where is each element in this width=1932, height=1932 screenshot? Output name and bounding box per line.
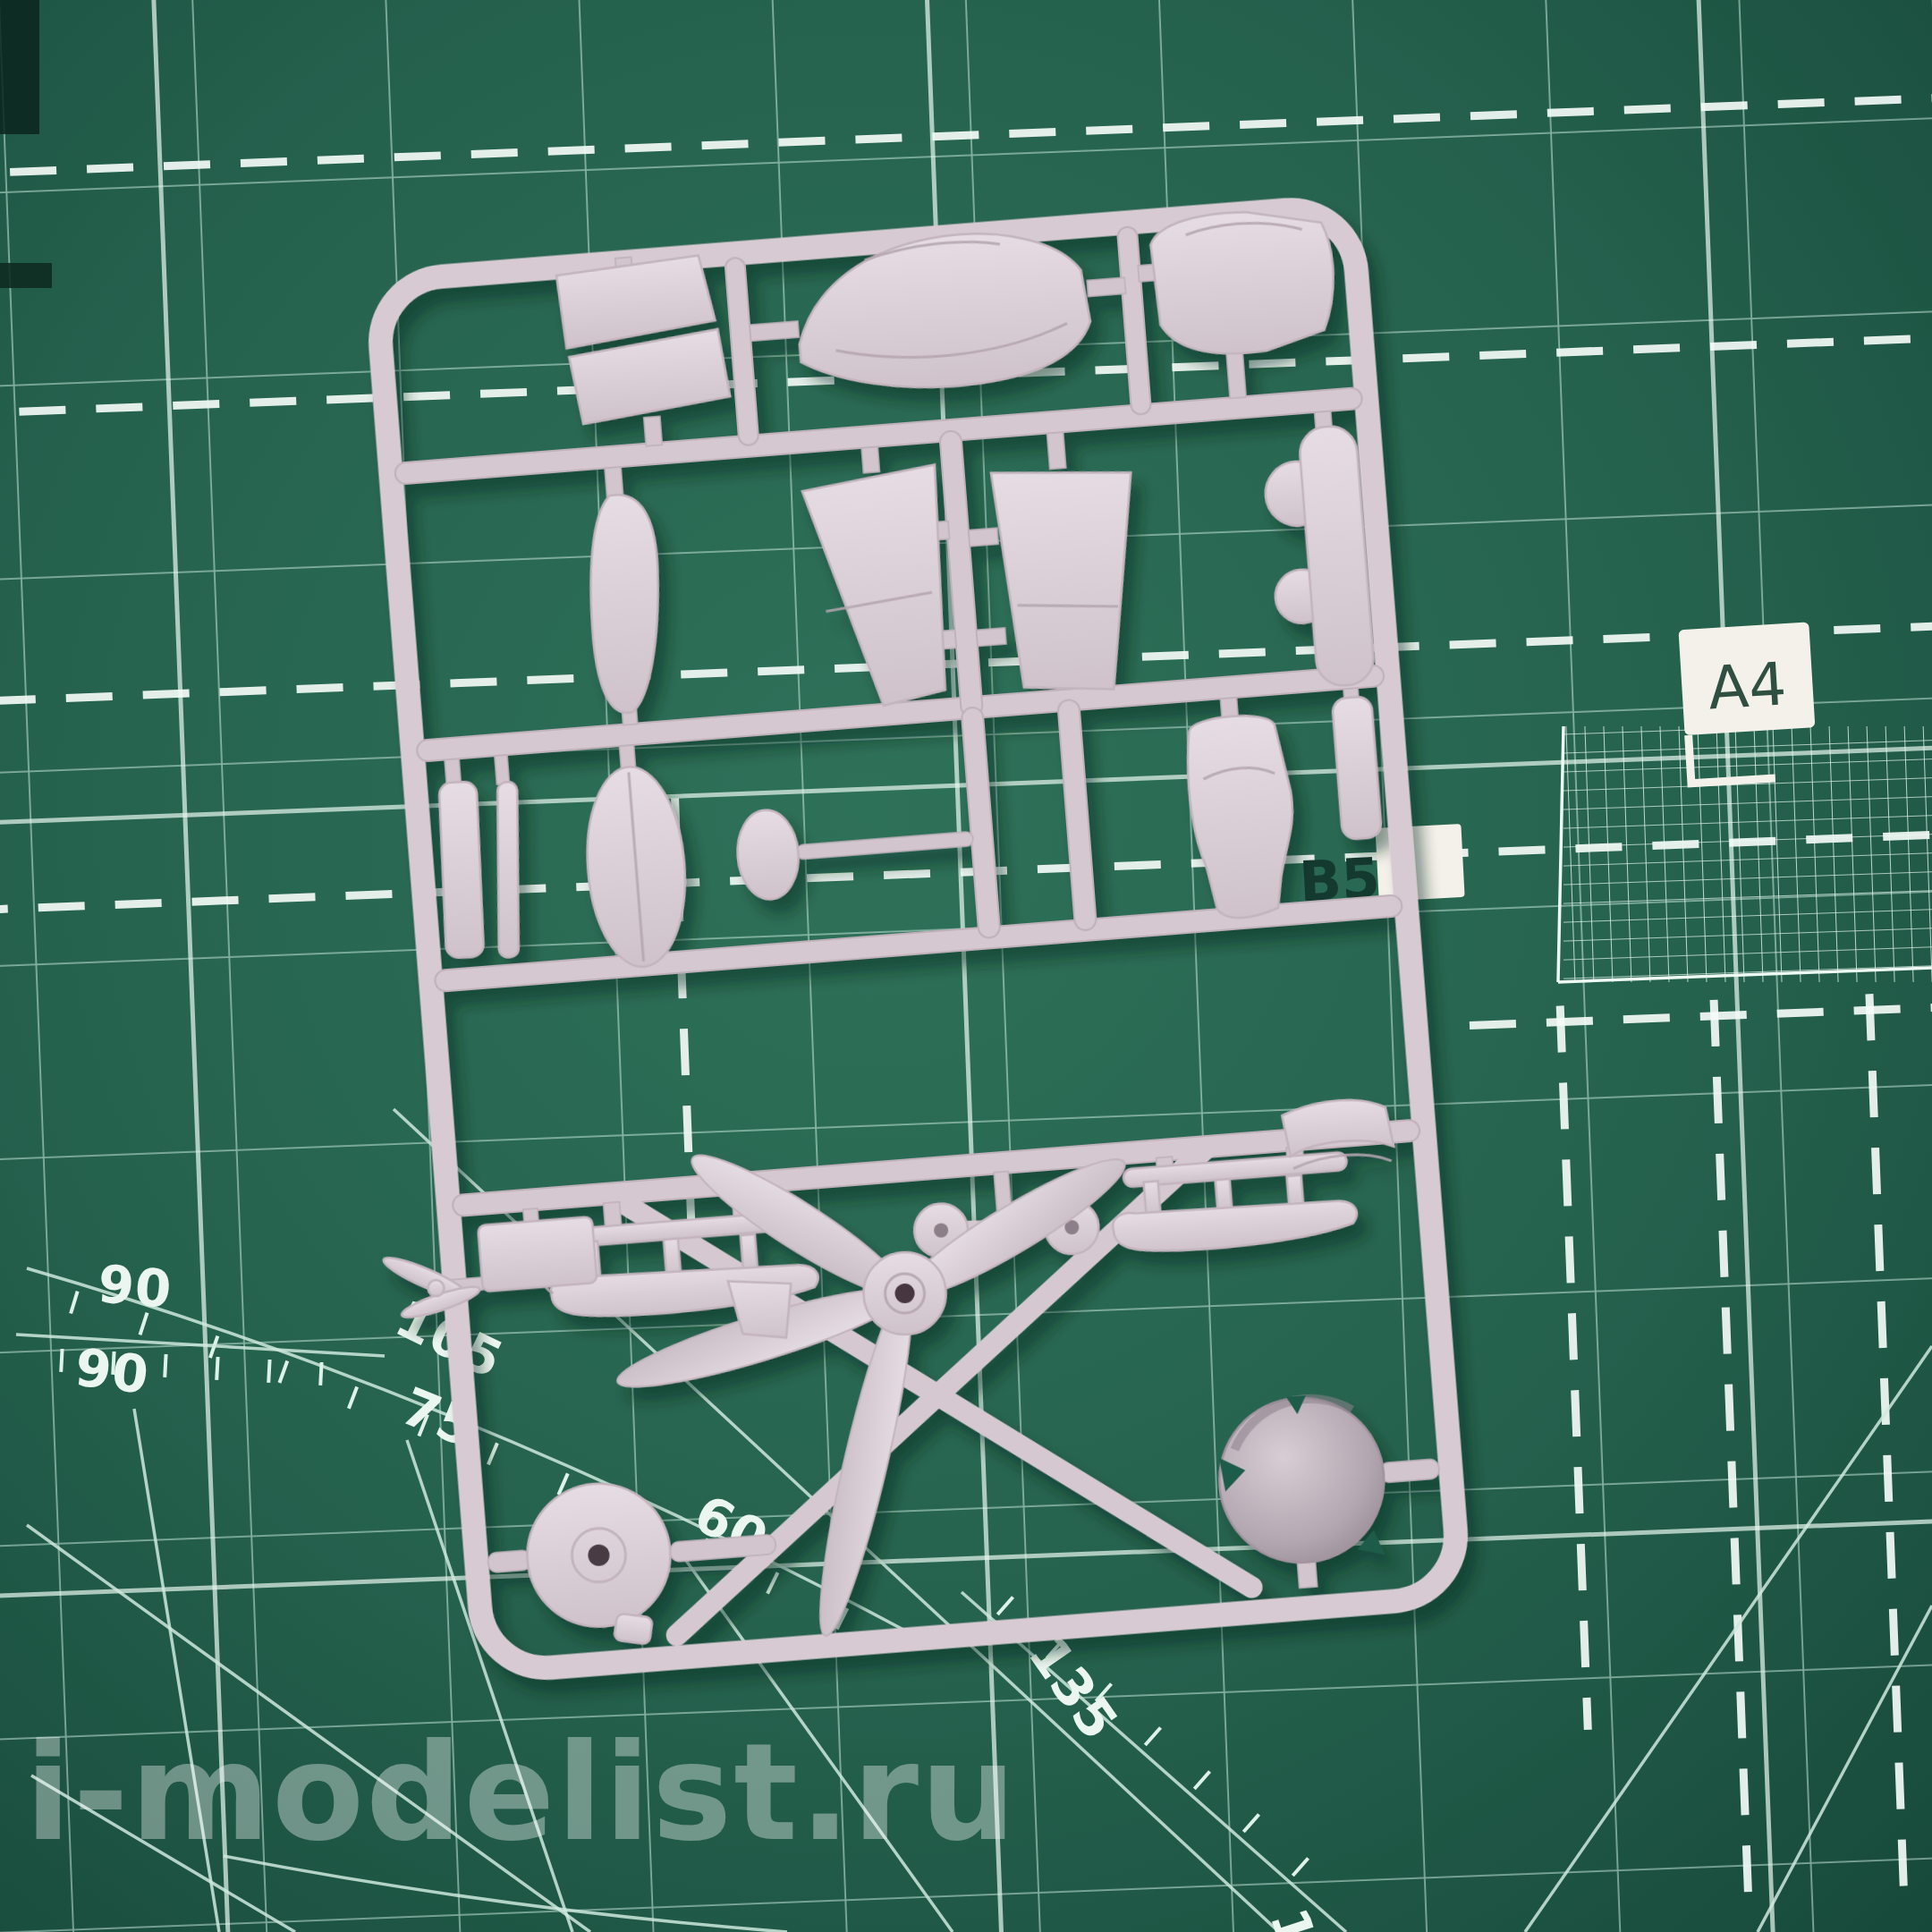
scene-svg: 90 90 105 75 60 135 150 A4 B5 [0, 0, 1932, 1932]
photo-canvas: 90 90 105 75 60 135 150 A4 B5 [0, 0, 1932, 1932]
watermark-text: i-modelist.ru [25, 1715, 1018, 1870]
